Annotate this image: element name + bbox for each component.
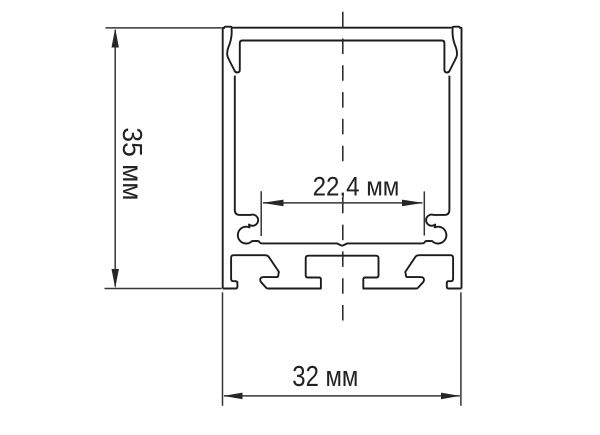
svg-text:22,4 мм: 22,4 мм	[313, 172, 400, 202]
svg-text:35 мм: 35 мм	[117, 127, 148, 200]
svg-text:32 мм: 32 мм	[292, 361, 358, 393]
